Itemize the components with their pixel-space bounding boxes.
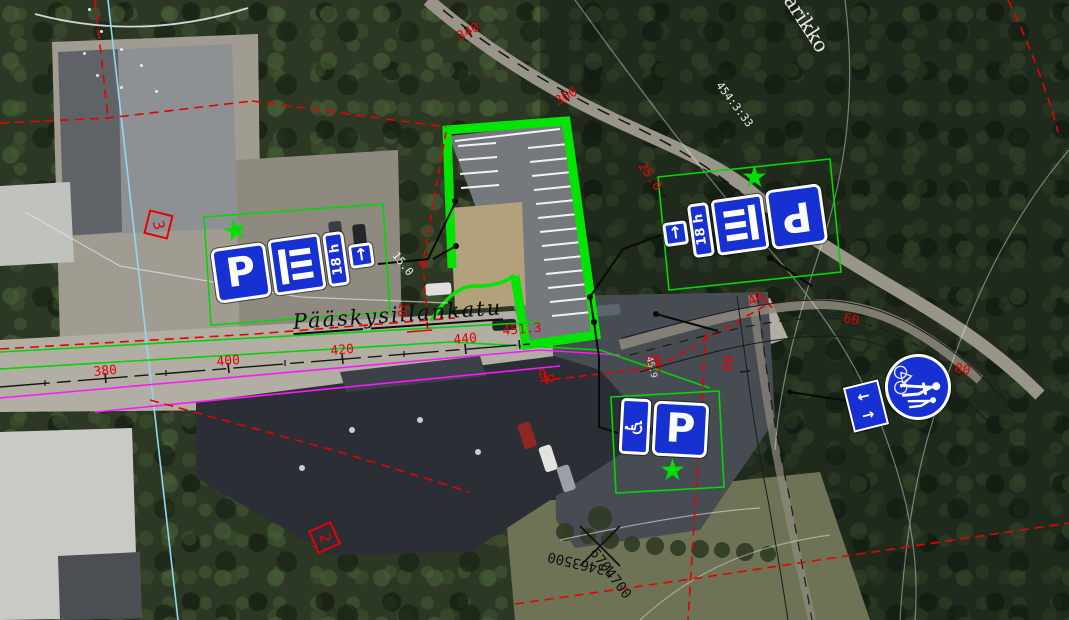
disc-bar	[727, 233, 748, 241]
star-icon: ★	[741, 160, 768, 195]
cyan-utility-line	[108, 0, 178, 620]
red-boundary-lines	[0, 0, 1069, 620]
pedestrian-bicycle-icon	[882, 351, 953, 422]
station-label-branch: 60	[718, 354, 734, 372]
sign-group-accessible: ♿ P	[619, 398, 710, 459]
parking-sign-letter: P	[223, 248, 258, 298]
disc-bar	[291, 259, 312, 267]
overlay-layer	[0, 0, 1069, 620]
star-icon: ★	[659, 453, 686, 488]
top-path-centerline	[443, 10, 740, 192]
disc-bar	[278, 249, 290, 285]
arrow-right-icon: →	[860, 404, 877, 425]
direction-arrow-sign: ↑	[662, 220, 689, 247]
star-marker: ★	[741, 163, 768, 193]
parking-sign: P	[210, 241, 272, 303]
magenta-lines	[0, 350, 620, 412]
white-arc-topleft	[35, 8, 248, 27]
parking-sign: P	[765, 183, 829, 250]
parking-sign: P	[652, 400, 710, 458]
parking-sign-letter: P	[779, 192, 814, 242]
parking-disc-sign	[267, 233, 326, 296]
station-label-path: 0	[538, 368, 547, 382]
plot-number-text: 3	[149, 218, 169, 231]
plot-number-text: 2	[315, 531, 335, 545]
red-node-circle	[548, 375, 554, 381]
wheelchair-sign: ♿	[619, 398, 652, 455]
star-marker: ★	[659, 456, 686, 486]
disc-bar	[723, 209, 744, 217]
contour-lines	[575, 0, 1069, 620]
station-label-street: 400	[216, 354, 241, 369]
time-limit-sign: 18 h	[322, 231, 350, 287]
arrow-up-icon: ↑	[353, 245, 370, 267]
disc-bar	[748, 205, 760, 241]
time-limit-text: 18 h	[326, 242, 345, 276]
direction-arrow-sign: ↑	[348, 242, 375, 269]
dimension-label: 10	[394, 301, 410, 319]
arrow-up-icon: ↑	[667, 223, 684, 245]
wheelchair-icon: ♿	[619, 413, 651, 440]
station-label-street: 440	[453, 332, 478, 347]
time-limit-text: 18 h	[691, 213, 710, 247]
disc-bar	[292, 271, 313, 279]
station-label-street: 380	[93, 364, 118, 379]
disc-bar	[725, 221, 746, 229]
station-label-street: 451.3	[502, 322, 542, 338]
station-label-street: 420	[330, 343, 355, 358]
parking-disc-sign	[710, 193, 769, 256]
parking-sign-letter: P	[665, 405, 697, 452]
disc-bar	[289, 248, 310, 256]
map-canvas[interactable]: P 18 h ↑ ★ ↑ 18 h P ★ ♿ P ★ ← →	[0, 0, 1069, 620]
station-label-path: 60	[842, 312, 860, 328]
station-label-path: 80	[953, 362, 971, 378]
